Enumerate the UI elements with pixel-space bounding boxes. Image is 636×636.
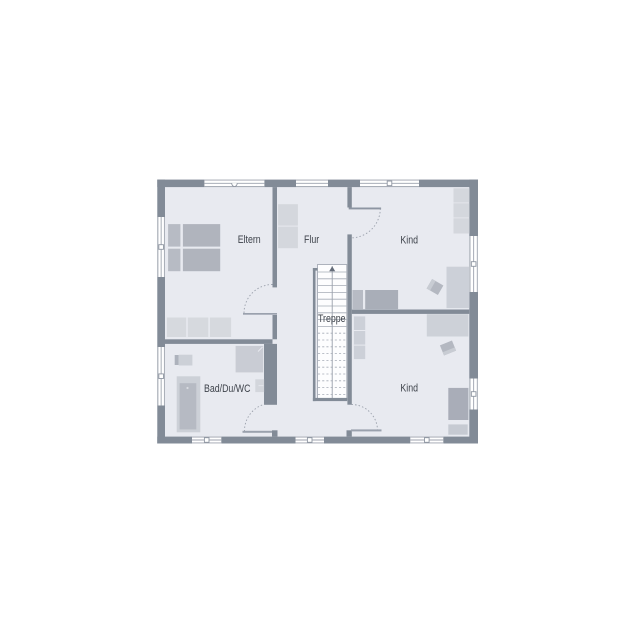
svg-text:Bad/Du/WC: Bad/Du/WC: [204, 383, 250, 395]
svg-text:Treppe: Treppe: [318, 313, 346, 325]
svg-text:Eltern: Eltern: [238, 234, 261, 246]
svg-text:Kind: Kind: [400, 235, 418, 247]
svg-text:Kind: Kind: [400, 382, 418, 394]
svg-text:Flur: Flur: [304, 234, 320, 246]
